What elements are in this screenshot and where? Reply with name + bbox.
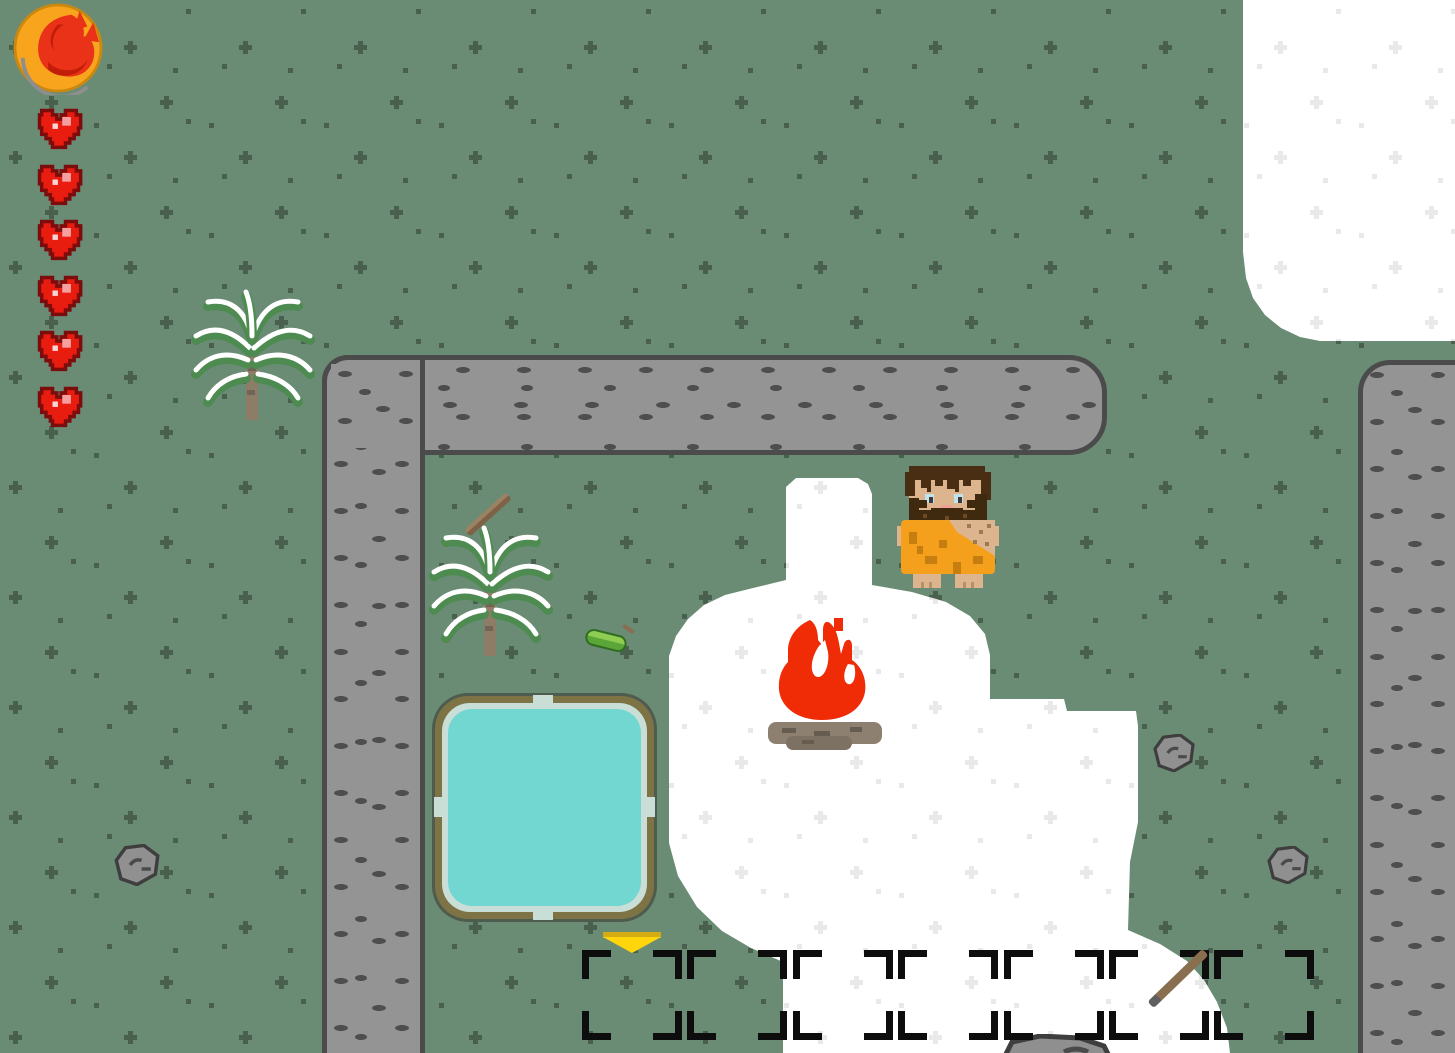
pattern-cross (850, 536, 863, 549)
pattern-cross (9, 1031, 22, 1044)
pattern-dot (288, 618, 293, 623)
pattern-cross (1274, 811, 1287, 824)
pattern-cross (1044, 921, 1057, 934)
pattern-dot (1257, 394, 1262, 399)
pattern-dot (209, 563, 214, 568)
pattern-dot (337, 284, 342, 289)
pattern-dot (222, 614, 227, 619)
pattern-dot (761, 889, 766, 894)
pattern-dot (1244, 563, 1249, 568)
pattern-cross (354, 151, 367, 164)
pattern-cross (1425, 316, 1438, 329)
pattern-dot (669, 563, 674, 568)
pattern-cross (45, 756, 58, 769)
pattern-dot (1142, 394, 1147, 399)
pattern-cross (814, 41, 827, 54)
pattern-cross (1274, 41, 1287, 54)
pattern-dot (301, 9, 306, 14)
pattern-cross (735, 756, 748, 769)
pattern-dot (554, 233, 559, 238)
pattern-cross (699, 481, 712, 494)
pattern-dot (1221, 889, 1226, 894)
pattern-dot (1244, 453, 1249, 458)
pattern-dot (1221, 339, 1226, 344)
pattern-dot (682, 64, 687, 69)
pattern-dot (1323, 288, 1328, 293)
pond[interactable] (432, 693, 657, 922)
heart-icon (33, 273, 85, 321)
slot-corner (864, 1011, 893, 1040)
slot-corner (793, 950, 822, 979)
pattern-dot (1093, 618, 1098, 623)
pattern-cross (1389, 261, 1402, 274)
pattern-dot (1221, 559, 1226, 564)
pattern-dot (1106, 9, 1111, 14)
pattern-cross (124, 701, 137, 714)
pattern-dot (1336, 889, 1341, 894)
pattern-dot (899, 343, 904, 348)
pattern-dot (978, 178, 983, 183)
pattern-cross (929, 151, 942, 164)
pattern-dot (222, 64, 227, 69)
pattern-cross (965, 316, 978, 329)
pattern-dot (1106, 779, 1111, 784)
pattern-cross (1080, 96, 1093, 109)
pattern-cross (1044, 591, 1057, 604)
pattern-dot (1142, 724, 1147, 729)
pattern-cross (965, 646, 978, 659)
pattern-dot (531, 229, 536, 234)
pattern-dot (1208, 508, 1213, 513)
pattern-dot (1323, 178, 1328, 183)
leg (913, 574, 941, 588)
pattern-cross (1310, 866, 1323, 879)
pattern-dot (1221, 779, 1226, 784)
pattern-cross (584, 921, 597, 934)
pattern-dot (899, 673, 904, 678)
pattern-dot (173, 618, 178, 623)
pattern-dot (209, 233, 214, 238)
pattern-dot (301, 669, 306, 674)
pattern-cross (814, 811, 827, 824)
pattern-dot (107, 944, 112, 949)
pattern-dot (1336, 449, 1341, 454)
pattern-dot (1438, 178, 1443, 183)
pattern-dot (324, 233, 329, 238)
pattern-cross (469, 921, 482, 934)
pattern-dot (876, 339, 881, 344)
pattern-cross (620, 536, 633, 549)
pattern-dot (222, 174, 227, 179)
pattern-dot (1244, 673, 1249, 678)
pattern-cross (929, 701, 942, 714)
pattern-dot (748, 618, 753, 623)
pattern-dot (797, 504, 802, 509)
pond-notch (645, 797, 655, 817)
pattern-dot (301, 889, 306, 894)
pattern-dot (1142, 834, 1147, 839)
pattern-dot (518, 288, 523, 293)
hud (0, 0, 200, 450)
pattern-dot (1142, 504, 1147, 509)
rock[interactable] (1152, 734, 1196, 772)
pattern-cross (124, 1031, 137, 1044)
pattern-cross (1080, 756, 1093, 769)
stone-wall-top (322, 355, 1107, 455)
pattern-cross (239, 701, 252, 714)
pattern-cross (124, 921, 137, 934)
pattern-dot (797, 834, 802, 839)
pattern-dot (1106, 559, 1111, 564)
slot-corner (969, 1011, 998, 1040)
pattern-dot (912, 834, 917, 839)
slot-corner (1075, 950, 1104, 979)
pattern-dot (1244, 893, 1249, 898)
slot-corner (864, 950, 893, 979)
leg (955, 574, 983, 588)
pattern-dot (173, 838, 178, 843)
pattern-dot (748, 68, 753, 73)
pattern-cross (1310, 646, 1323, 659)
pattern-cross (124, 811, 137, 824)
pattern-dot (288, 728, 293, 733)
pattern-cross (160, 976, 173, 989)
pond-notch (533, 910, 553, 920)
pattern-cross (505, 96, 518, 109)
pattern-cross (354, 261, 367, 274)
player-character[interactable] (893, 464, 1003, 588)
snowy-fern[interactable] (428, 524, 554, 664)
pattern-dot (876, 229, 881, 234)
pattern-cross (1195, 316, 1208, 329)
pattern-dot (876, 9, 881, 14)
pattern-dot (301, 559, 306, 564)
pattern-dot (1451, 119, 1455, 124)
pattern-cross (9, 481, 22, 494)
flame-spark (834, 618, 843, 631)
pattern-dot (1221, 449, 1226, 454)
pattern-dot (518, 508, 523, 513)
pattern-dot (288, 948, 293, 953)
pattern-cross (965, 96, 978, 109)
pattern-dot (784, 893, 789, 898)
pattern-cross (275, 756, 288, 769)
pattern-dot (797, 284, 802, 289)
pattern-cross (1310, 426, 1323, 439)
pattern-dot (301, 229, 306, 234)
pattern-dot (531, 9, 536, 14)
pattern-dot (863, 68, 868, 73)
pattern-cross (1159, 151, 1172, 164)
pattern-cross (275, 976, 288, 989)
pattern-cross (1425, 96, 1438, 109)
pattern-cross (699, 811, 712, 824)
pattern-dot (1093, 178, 1098, 183)
slot-corner (1285, 1011, 1314, 1040)
pattern-cross (469, 151, 482, 164)
game-scene (0, 0, 1455, 1053)
pattern-dot (1257, 64, 1262, 69)
stone-wall-right (1358, 360, 1455, 1053)
pattern-dot (222, 504, 227, 509)
pattern-dot (1093, 838, 1098, 843)
pattern-dot (1336, 559, 1341, 564)
pattern-cross (814, 591, 827, 604)
pattern-dot (761, 779, 766, 784)
pattern-cross (1274, 921, 1287, 934)
pattern-dot (288, 68, 293, 73)
pattern-dot (107, 834, 112, 839)
pattern-dot (107, 614, 112, 619)
pattern-cross (850, 96, 863, 109)
pattern-dot (1221, 229, 1226, 234)
pattern-dot (646, 669, 651, 674)
pattern-cross (1195, 646, 1208, 659)
pattern-dot (58, 508, 63, 513)
pattern-dot (186, 779, 191, 784)
pattern-dot (912, 724, 917, 729)
pattern-cross (735, 866, 748, 879)
pattern-dot (1093, 68, 1098, 73)
heart-icon (33, 162, 85, 210)
pattern-cross (814, 261, 827, 274)
pattern-dot (633, 288, 638, 293)
pattern-dot (1257, 724, 1262, 729)
pattern-dot (1451, 9, 1455, 14)
pattern-cross (1310, 756, 1323, 769)
pattern-dot (761, 339, 766, 344)
slot-corner (687, 1011, 716, 1040)
pattern-dot (452, 174, 457, 179)
hotbar-slot-1[interactable] (582, 950, 682, 1040)
log (786, 736, 852, 750)
pattern-dot (682, 174, 687, 179)
pattern-dot (518, 178, 523, 183)
pattern-dot (1208, 728, 1213, 733)
pattern-dot (682, 724, 687, 729)
pattern-dot (912, 284, 917, 289)
pattern-cross (1044, 811, 1057, 824)
pattern-cross (850, 756, 863, 769)
pattern-dot (1359, 343, 1364, 348)
pattern-dot (784, 783, 789, 788)
pattern-dot (71, 669, 76, 674)
pattern-cross (239, 1031, 252, 1044)
pattern-dot (1027, 614, 1032, 619)
pattern-cross (929, 41, 942, 54)
pattern-cross (239, 151, 252, 164)
pond-notch (533, 695, 553, 705)
pattern-cross (505, 976, 518, 989)
pattern-dot (186, 669, 191, 674)
pattern-cross (390, 96, 403, 109)
pattern-cross (275, 866, 288, 879)
pattern-dot (646, 339, 651, 344)
rock[interactable] (1266, 846, 1310, 884)
pattern-cross (1274, 591, 1287, 604)
pattern-dot (1208, 178, 1213, 183)
pattern-cross (45, 976, 58, 989)
campfire[interactable] (762, 610, 888, 755)
pattern-cross (699, 591, 712, 604)
pattern-cross (1159, 481, 1172, 494)
pattern-cross (965, 206, 978, 219)
slot-corner (1004, 950, 1033, 979)
pattern-dot (1129, 893, 1134, 898)
pattern-cross (584, 151, 597, 164)
pattern-cross (1044, 481, 1057, 494)
pattern-dot (186, 559, 191, 564)
pattern-cross (1159, 41, 1172, 54)
pattern-dot (554, 563, 559, 568)
hotbar-slot-5[interactable] (1004, 950, 1104, 1040)
hotbar-slot-2[interactable] (687, 950, 787, 1040)
pattern-dot (554, 1003, 559, 1008)
pattern-cross (45, 536, 58, 549)
pattern-dot (748, 288, 753, 293)
pattern-dot (748, 178, 753, 183)
pattern-dot (1438, 68, 1443, 73)
pattern-cross (584, 41, 597, 54)
pattern-dot (554, 673, 559, 678)
pattern-dot (899, 233, 904, 238)
hotbar-slot-4[interactable] (898, 950, 998, 1040)
pattern-dot (1221, 669, 1226, 674)
pattern-dot (439, 673, 444, 678)
pattern-dot (1323, 508, 1328, 513)
pattern-cross (1310, 536, 1323, 549)
slot-corner (898, 950, 927, 979)
pond-water (448, 709, 641, 906)
pattern-dot (452, 944, 457, 949)
pattern-dot (1244, 783, 1249, 788)
pattern-dot (439, 123, 444, 128)
pattern-dot (1208, 68, 1213, 73)
pattern-dot (863, 178, 868, 183)
pattern-cross (620, 206, 633, 219)
pattern-cross (1159, 371, 1172, 384)
pattern-dot (991, 9, 996, 14)
pattern-cross (929, 921, 942, 934)
pattern-dot (633, 178, 638, 183)
pattern-dot (94, 563, 99, 568)
pattern-cross (1044, 261, 1057, 274)
pattern-cross (390, 316, 403, 329)
pattern-cross (850, 866, 863, 879)
slot-corner (1109, 950, 1138, 979)
pattern-dot (682, 834, 687, 839)
pattern-cross (275, 536, 288, 549)
pattern-dot (222, 724, 227, 729)
pattern-cross (354, 41, 367, 54)
slot-corner (653, 950, 682, 979)
pattern-dot (71, 999, 76, 1004)
pattern-dot (1129, 233, 1134, 238)
pattern-dot (991, 779, 996, 784)
pattern-dot (899, 893, 904, 898)
pattern-cross (1195, 756, 1208, 769)
pattern-cross (735, 316, 748, 329)
pattern-dot (58, 838, 63, 843)
pattern-dot (288, 178, 293, 183)
pattern-dot (784, 123, 789, 128)
pattern-cross (1195, 96, 1208, 109)
pattern-dot (301, 779, 306, 784)
pattern-dot (876, 779, 881, 784)
pattern-dot (1323, 948, 1328, 953)
pattern-cross (584, 261, 597, 274)
pattern-dot (567, 284, 572, 289)
pattern-cross (1274, 701, 1287, 714)
pattern-cross (814, 151, 827, 164)
pattern-dot (797, 174, 802, 179)
pattern-cross (1159, 921, 1172, 934)
pattern-cross (584, 591, 597, 604)
pattern-dot (1257, 614, 1262, 619)
pattern-dot (1129, 783, 1134, 788)
snowy-fern[interactable] (190, 288, 316, 428)
hotbar-slot-7[interactable] (1214, 950, 1314, 1040)
pattern-dot (761, 559, 766, 564)
pattern-dot (554, 343, 559, 348)
pattern-dot (1438, 288, 1443, 293)
pattern-dot (863, 508, 868, 513)
pattern-dot (912, 64, 917, 69)
pattern-dot (912, 944, 917, 949)
pattern-dot (669, 343, 674, 348)
pattern-dot (978, 68, 983, 73)
pattern-cross (9, 701, 22, 714)
pattern-cross (124, 591, 137, 604)
hotbar-slot-3[interactable] (793, 950, 893, 1040)
pattern-dot (682, 944, 687, 949)
pattern-dot (1257, 944, 1262, 949)
pattern-dot (337, 174, 342, 179)
pattern-cross (814, 481, 827, 494)
pattern-cross (1195, 866, 1208, 879)
pattern-dot (761, 9, 766, 14)
pattern-dot (646, 119, 651, 124)
pattern-dot (1093, 728, 1098, 733)
pattern-cross (620, 316, 633, 329)
pattern-dot (439, 343, 444, 348)
pattern-dot (209, 783, 214, 788)
pattern-dot (531, 339, 536, 344)
pattern-dot (71, 779, 76, 784)
pattern-dot (669, 783, 674, 788)
pattern-dot (554, 123, 559, 128)
slot-corner (1180, 1011, 1209, 1040)
pattern-dot (1106, 119, 1111, 124)
pattern-dot (567, 504, 572, 509)
slot-corner (758, 950, 787, 979)
pattern-dot (1106, 229, 1111, 234)
slot-corner (1214, 1011, 1243, 1040)
pattern-dot (567, 64, 572, 69)
pattern-dot (186, 999, 191, 1004)
pattern-dot (337, 64, 342, 69)
slot-corner (898, 1011, 927, 1040)
rock[interactable] (114, 844, 160, 886)
pattern-dot (991, 119, 996, 124)
pattern-dot (682, 504, 687, 509)
heart-icon (33, 217, 85, 265)
pattern-cross (1195, 426, 1208, 439)
pattern-dot (94, 1003, 99, 1008)
pattern-dot (1129, 453, 1134, 458)
pattern-cross (239, 41, 252, 54)
pattern-dot (58, 948, 63, 953)
